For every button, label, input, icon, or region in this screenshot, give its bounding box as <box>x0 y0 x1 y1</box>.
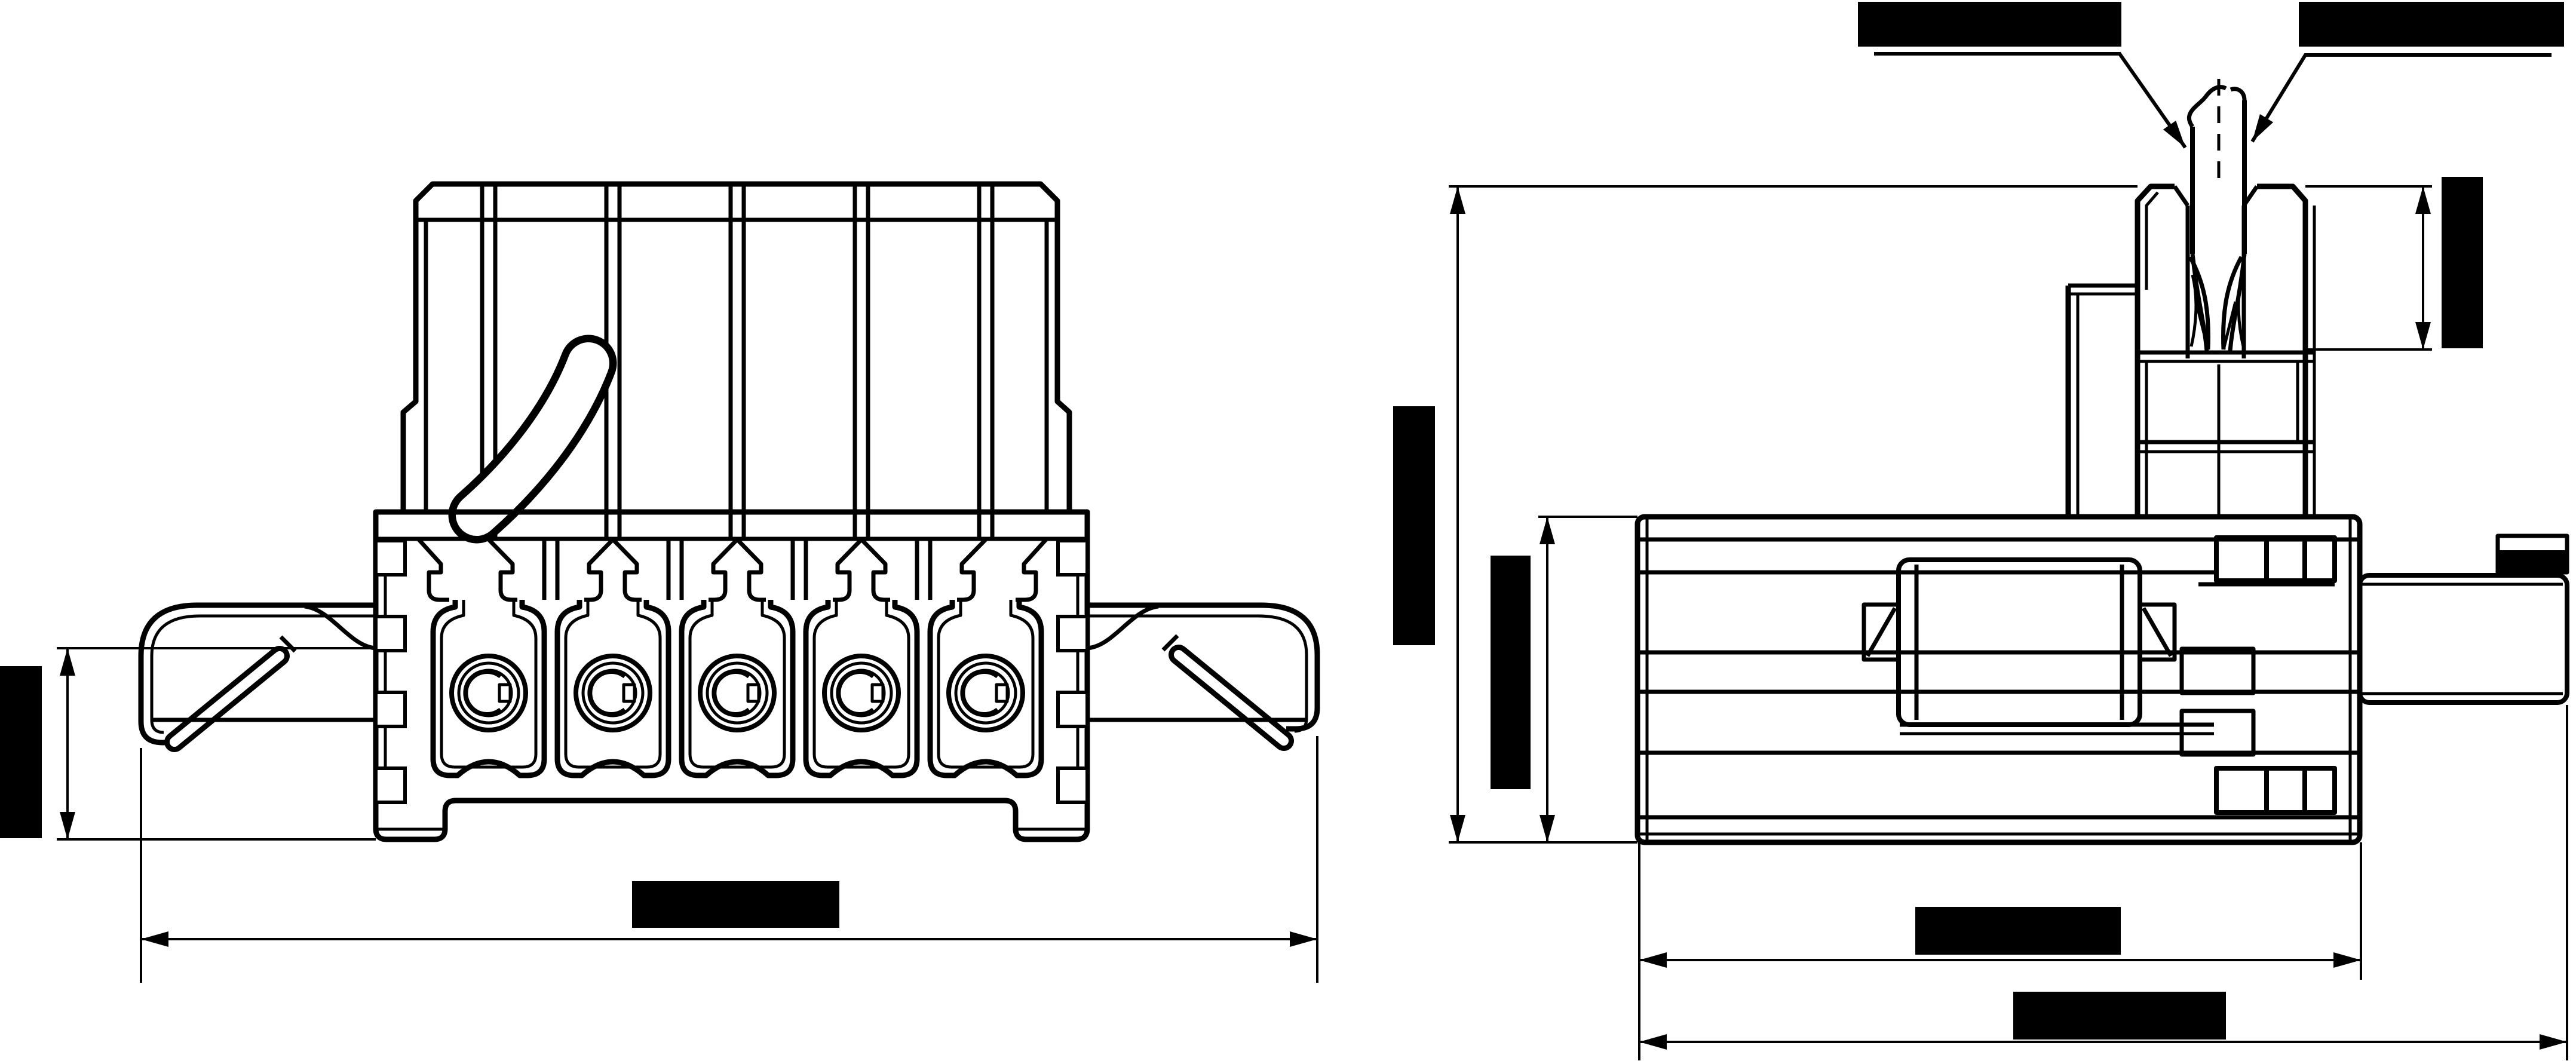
tab-contact-mark <box>2498 550 2567 572</box>
dimension-arrow <box>1639 1034 1667 1050</box>
castellation <box>488 539 614 600</box>
dimension-arrow <box>60 812 75 839</box>
dimension-side-contact-height <box>2305 186 2432 349</box>
callout-left-label <box>1858 2 2121 47</box>
side-view <box>1637 79 2567 842</box>
callout-right-leader <box>2252 55 2552 142</box>
leader-line <box>2252 55 2552 142</box>
side-body <box>1637 517 2360 842</box>
side-width2-label <box>2013 992 2226 1040</box>
dimension-front-height <box>57 648 376 839</box>
front-width-label <box>632 881 839 928</box>
castellation <box>612 539 738 600</box>
dimension-arrow <box>2415 322 2431 349</box>
dimension-arrow <box>60 648 75 676</box>
dimension-arrow <box>1450 815 1465 842</box>
front-height-label <box>0 666 42 838</box>
leader-callouts <box>1874 54 2552 148</box>
technical-drawing <box>0 0 2576 1064</box>
overall-height-label <box>1393 406 1435 645</box>
front-view <box>141 184 1317 839</box>
terminal-pocket-5 <box>930 600 1041 775</box>
dimension-arrow <box>2333 952 2361 968</box>
wire-break-symbol <box>2189 87 2226 127</box>
dimension-arrow <box>1450 186 1465 214</box>
terminal-pocket-4 <box>806 600 917 775</box>
contact-height-label <box>2442 177 2483 348</box>
housing-rib <box>979 186 992 539</box>
dimension-arrow <box>141 931 168 947</box>
left-mounting-clip <box>141 605 376 743</box>
leader-line <box>1874 54 2185 148</box>
dimension-front-width <box>141 736 1317 983</box>
callout-left-leader <box>1874 54 2185 148</box>
dimension-side-body-height <box>1538 517 1637 842</box>
right-mounting-clip <box>1087 605 1317 741</box>
dimension-arrow <box>1290 931 1317 947</box>
drawing-canvas <box>0 0 2576 1064</box>
solid-marks <box>2498 550 2567 572</box>
dimension-arrow <box>2540 1034 2567 1050</box>
castellation <box>861 539 986 600</box>
housing-rib <box>731 186 744 539</box>
dimension-arrow <box>1540 517 1555 544</box>
leader-arrow <box>2163 121 2185 148</box>
side-width1-label <box>1915 907 2121 955</box>
dimension-arrow <box>1639 952 1667 968</box>
body-height-label <box>1491 556 1531 789</box>
redaction-bars <box>0 2 2564 1040</box>
terminal-pocket-2 <box>557 600 668 775</box>
dimension-arrow <box>1540 815 1555 842</box>
housing-rib <box>855 186 868 539</box>
leader-arrow <box>2252 114 2273 142</box>
front-terminal-strip <box>376 512 1087 839</box>
dimension-arrow <box>2415 186 2431 214</box>
castellation <box>737 539 862 600</box>
terminal-pocket-1 <box>433 600 544 775</box>
callout-right-label <box>2299 2 2564 47</box>
terminal-pocket-3 <box>682 600 793 775</box>
